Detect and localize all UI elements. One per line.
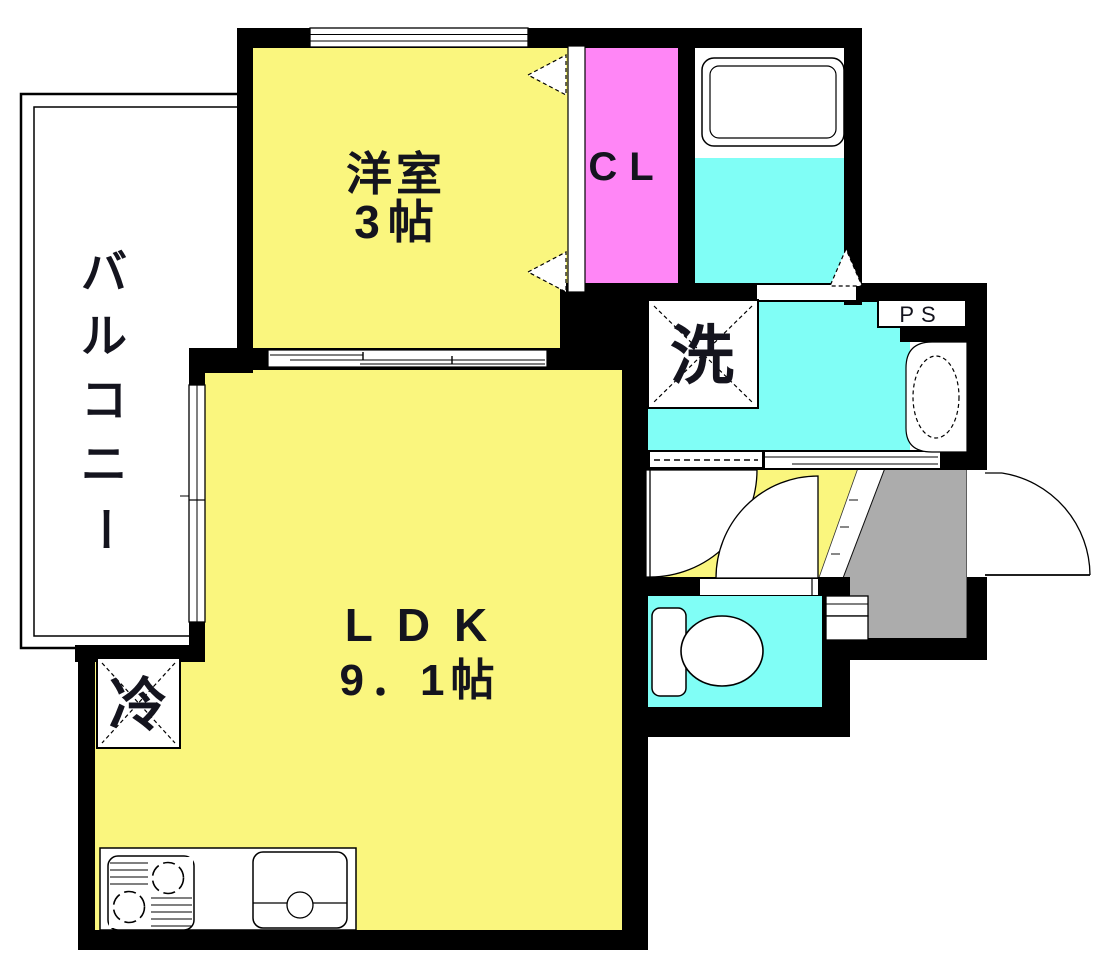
- wall: [630, 283, 648, 470]
- wall: [678, 28, 695, 305]
- bathroom-floor: [695, 158, 844, 287]
- balcony-label: バ ル コ ニ ー: [79, 246, 131, 552]
- western-room-window: [310, 28, 528, 47]
- sink-drain: [287, 892, 313, 918]
- stove: [108, 856, 194, 930]
- toilet-door-opening: [700, 579, 818, 595]
- front-door-swing: [1002, 473, 1090, 575]
- burner: [153, 863, 184, 894]
- kitchen-sink: [253, 852, 347, 928]
- washroom-sliding-door: [650, 452, 762, 467]
- kitchen: [100, 848, 356, 930]
- sliding-door-western-ldk: [268, 350, 547, 367]
- wash-basin: [906, 342, 967, 452]
- wall: [845, 638, 987, 660]
- svg-text:ニ: ニ: [81, 438, 127, 490]
- svg-text:ー: ー: [79, 506, 131, 552]
- ldk-size: 9．1帖: [340, 656, 501, 705]
- western-room-label: 洋室: [346, 148, 446, 200]
- ldk-label: LDK: [345, 599, 512, 651]
- washing-machine-label: 洗: [670, 320, 734, 392]
- front-door: [985, 473, 1090, 575]
- bathtub: [702, 58, 844, 146]
- svg-text:バ: バ: [81, 246, 127, 298]
- wall: [237, 28, 253, 373]
- front-door-opening: [967, 470, 987, 577]
- wall: [78, 930, 648, 950]
- pipe-space: PS: [878, 300, 966, 327]
- closet-label: CL: [588, 145, 665, 189]
- entrance-step-boxes: [826, 596, 868, 640]
- refrigerator-label: 冷: [109, 673, 167, 738]
- floor-plan: PS 洗 冷: [0, 0, 1108, 980]
- pipe-space-label: PS: [899, 302, 942, 327]
- svg-text:ル: ル: [81, 310, 127, 362]
- refrigerator-space: 冷: [97, 658, 180, 748]
- western-room-size: 3帖: [354, 196, 442, 248]
- wall: [630, 707, 850, 737]
- wall: [78, 645, 95, 950]
- svg-text:コ: コ: [81, 374, 127, 426]
- toilet-bowl: [681, 616, 763, 686]
- burner: [114, 892, 145, 923]
- bathroom-door-opening: [757, 285, 856, 300]
- washing-machine-space: 洗: [648, 300, 758, 408]
- entrance-corridor-door: [765, 452, 940, 468]
